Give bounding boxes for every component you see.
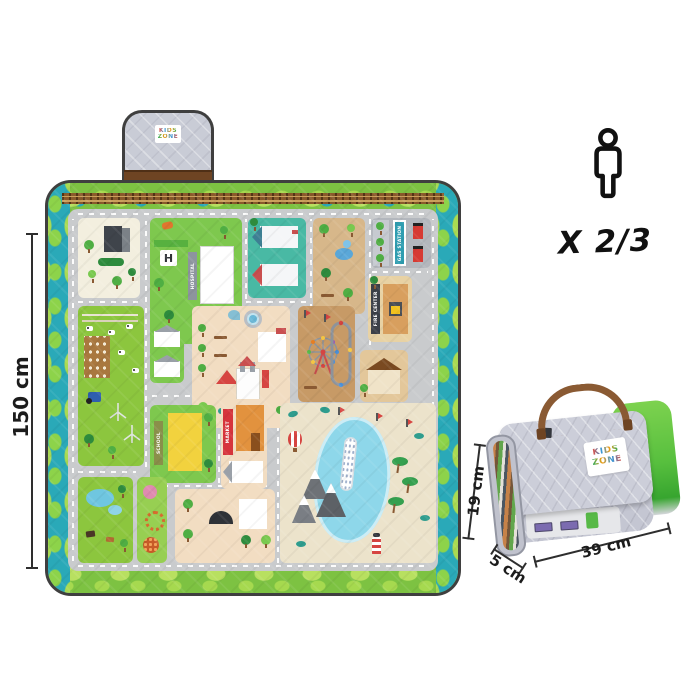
school-building	[168, 413, 202, 471]
tree-icon	[84, 240, 94, 250]
market-sign: MARKET	[223, 409, 233, 455]
roller-coaster-icon	[329, 320, 353, 390]
building	[258, 332, 286, 362]
fire-center-sign: FIRE CENTER	[371, 284, 380, 334]
house	[368, 370, 400, 394]
tree-icon	[118, 485, 126, 493]
block-pond	[78, 477, 133, 563]
wind-turbine-icon	[122, 424, 142, 444]
flag-icon	[376, 413, 378, 421]
roof	[223, 461, 232, 483]
church-roof	[238, 356, 256, 366]
block-school: SCHOOL	[150, 405, 216, 483]
tree-icon	[370, 276, 378, 284]
carry-handle	[534, 379, 631, 437]
flag-icon	[338, 407, 340, 415]
mat-height-label: 150 cm	[9, 352, 33, 442]
tree-icon	[220, 226, 228, 234]
flower-bed	[143, 537, 159, 553]
mountain	[316, 483, 346, 517]
block-fire-center: FIRE CENTER	[368, 276, 412, 342]
railroad-track	[62, 193, 444, 204]
road-dash	[78, 565, 428, 567]
tree-icon	[128, 268, 136, 276]
tree-icon	[376, 238, 384, 246]
tree-icon	[261, 535, 271, 545]
flower-tree	[143, 485, 157, 499]
camo-border-left	[48, 183, 70, 593]
tree-icon	[164, 310, 174, 320]
flag-icon	[304, 310, 306, 318]
tree-icon	[183, 499, 193, 509]
fuel-pump	[413, 246, 423, 262]
bench	[214, 336, 227, 339]
tree-icon	[183, 529, 193, 539]
tree-icon	[84, 434, 94, 444]
arch-monument	[209, 511, 233, 524]
bench	[304, 386, 317, 389]
cow-icon	[118, 350, 125, 355]
chimney	[292, 230, 298, 234]
kids-zone-logo-bag: KIDS ZONE	[583, 437, 630, 477]
camo-border-right	[436, 183, 458, 593]
tree-icon	[321, 268, 331, 278]
building	[239, 499, 267, 529]
house	[229, 461, 263, 483]
block-amusement-park	[298, 306, 355, 402]
roof	[252, 264, 262, 286]
tree-icon	[112, 276, 122, 286]
grass-stripe	[154, 240, 188, 247]
product-dimension-diagram: KIDS ZONE	[0, 0, 700, 700]
block-waterpark	[313, 218, 365, 314]
tree-icon	[376, 254, 384, 262]
hot-air-balloon	[288, 431, 302, 447]
block-houses	[248, 218, 306, 298]
lighthouse	[372, 537, 381, 554]
block-park	[78, 218, 140, 298]
splash-pool	[343, 240, 351, 248]
road-dash	[372, 271, 428, 273]
road-dash	[78, 301, 142, 303]
building	[104, 226, 122, 252]
hospital-building	[200, 246, 234, 304]
shrub-icon	[414, 433, 424, 439]
fence	[82, 314, 138, 316]
fire-truck	[391, 306, 400, 314]
house	[154, 361, 180, 377]
print-window	[534, 522, 553, 532]
print-window	[560, 520, 579, 530]
mountain	[292, 495, 316, 523]
palm-tree-icon	[398, 461, 402, 465]
flower-ring	[145, 511, 165, 531]
house	[260, 264, 298, 286]
tree-icon	[198, 344, 206, 352]
flag-icon	[324, 314, 326, 322]
road-dash	[78, 471, 136, 473]
logo-word-zone: ZONE	[592, 454, 623, 468]
road-dash	[310, 219, 312, 309]
cow-icon	[126, 324, 133, 329]
kiosk-roof	[216, 370, 238, 384]
water-spray	[228, 310, 240, 320]
block-market: MARKET	[221, 399, 267, 489]
roof	[154, 325, 180, 332]
road-dash	[245, 219, 247, 299]
play-mat: H HOSPITAL	[45, 180, 461, 596]
bench	[214, 354, 227, 357]
tree-icon	[241, 535, 251, 545]
tractor-wheel	[86, 398, 92, 404]
mat-top-flap: KIDS ZONE	[122, 110, 214, 185]
roof	[366, 358, 402, 370]
bench	[321, 294, 334, 297]
tree-icon	[347, 224, 355, 232]
logo-word-zone: ZONE	[158, 134, 179, 140]
moose-icon	[86, 530, 96, 537]
cow-icon	[132, 368, 139, 373]
shrub-icon	[320, 406, 331, 414]
door	[262, 370, 269, 388]
tree-icon	[108, 446, 116, 454]
lighthouse-top	[373, 533, 380, 537]
palm-tree-icon	[408, 481, 412, 485]
roof	[154, 355, 180, 362]
building	[122, 228, 130, 252]
capacity-label: X 2/3	[534, 222, 675, 263]
tree-icon	[319, 224, 329, 234]
tree-icon	[198, 364, 206, 372]
shrub-icon	[296, 541, 306, 547]
tree-icon	[204, 459, 213, 468]
folded-height-label: 19 cm	[463, 460, 488, 522]
helipad: H	[160, 250, 177, 266]
block-farm	[78, 306, 144, 466]
tree-icon	[360, 384, 368, 392]
road-dash	[72, 219, 74, 561]
flag-icon	[406, 419, 408, 427]
school-sign: SCHOOL	[154, 421, 163, 465]
person-icon	[584, 128, 632, 218]
wind-turbine-icon	[108, 402, 128, 422]
house	[154, 331, 180, 347]
palm-tree-icon	[394, 501, 398, 505]
block-lagoon	[280, 403, 436, 563]
tree-icon	[376, 222, 384, 230]
shrub-icon	[287, 410, 298, 418]
door	[251, 433, 260, 451]
pond	[86, 489, 114, 507]
road-dash	[246, 301, 306, 303]
tree-icon	[204, 413, 213, 422]
tree-icon	[120, 539, 128, 547]
roof-ledge	[276, 328, 286, 334]
splash-pool	[335, 248, 353, 260]
kids-zone-logo-flap: KIDS ZONE	[155, 125, 181, 143]
fence	[82, 320, 138, 322]
hedge	[98, 258, 124, 266]
mat-city-map: H HOSPITAL	[68, 209, 438, 571]
tree-icon	[343, 288, 353, 298]
block-small-houses	[150, 325, 184, 383]
road-dash	[145, 221, 147, 467]
block-tan-house	[360, 350, 408, 402]
fountain	[244, 310, 262, 328]
hospital-sign: HOSPITAL	[188, 252, 197, 300]
block-promenade	[175, 489, 275, 563]
block-garden	[137, 477, 167, 563]
block-gas-station: GAS STATION	[371, 218, 431, 268]
pond	[108, 505, 122, 515]
fuel-pump	[413, 223, 423, 239]
deer-icon	[106, 537, 114, 543]
farm-building	[84, 336, 110, 378]
cow-icon	[108, 330, 115, 335]
tree-icon	[154, 278, 164, 288]
tree-icon	[88, 270, 96, 278]
cow-icon	[86, 326, 93, 331]
tree-icon	[198, 324, 206, 332]
shrub-icon	[420, 515, 430, 521]
print-grass	[586, 512, 599, 529]
road-dash	[78, 213, 428, 215]
balloon-basket	[293, 448, 297, 452]
tree-icon	[250, 218, 258, 226]
fox-icon	[161, 221, 173, 230]
gas-station-sign: GAS STATION	[395, 222, 404, 264]
